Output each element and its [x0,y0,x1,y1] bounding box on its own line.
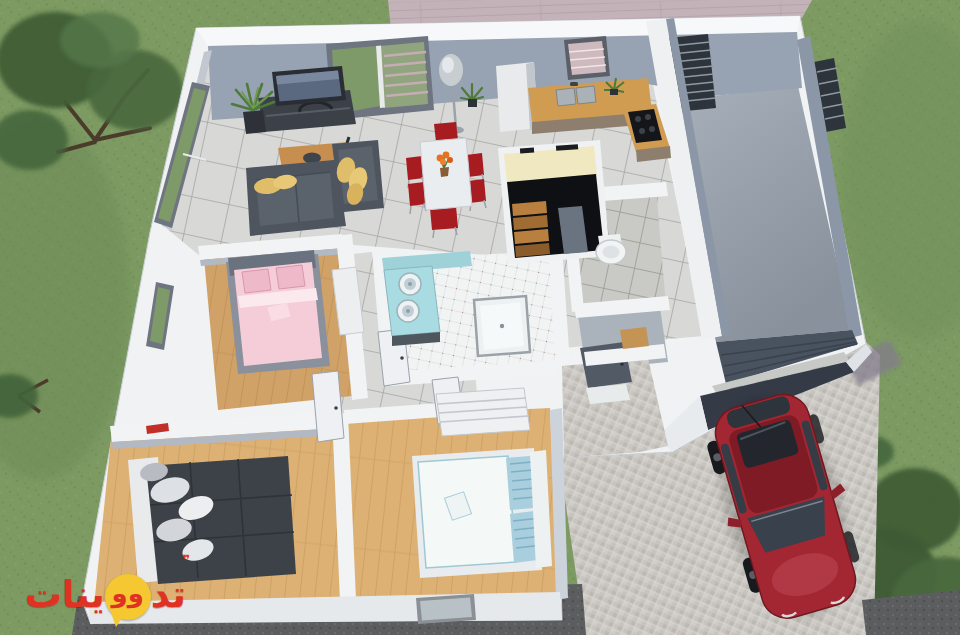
floorplan-render: تد وو ينات ❞ [0,0,960,635]
door-handle [620,362,624,366]
shower [474,296,530,356]
stairwell [498,140,610,264]
vanity-sink [399,273,421,295]
watermark-text-right: تد [151,576,186,613]
kitchen-window [564,36,610,80]
bubble-marks: وو [112,578,144,608]
scene-svg [0,0,960,635]
vanity-sink [397,300,419,322]
shower-drain [500,324,504,328]
toilet-seat [603,246,620,259]
stair-pit [507,174,604,258]
stair-rail [520,148,534,154]
tv [272,66,346,106]
bed-white [412,448,552,578]
watermark-text-left: ينات [25,576,105,613]
south-window-glass [420,598,472,621]
watermark-logo: تد وو ينات ❞ [26,556,186,632]
faucet [570,82,578,86]
pillow [242,269,271,293]
bed-pink [226,250,330,374]
pillow [276,265,305,289]
speech-bubble-icon: وو [105,574,151,620]
quote-mark: ❞ [182,552,190,567]
shelf-unit [436,388,530,436]
bedroom2-door [312,371,344,442]
storage-cabinet [620,327,649,349]
